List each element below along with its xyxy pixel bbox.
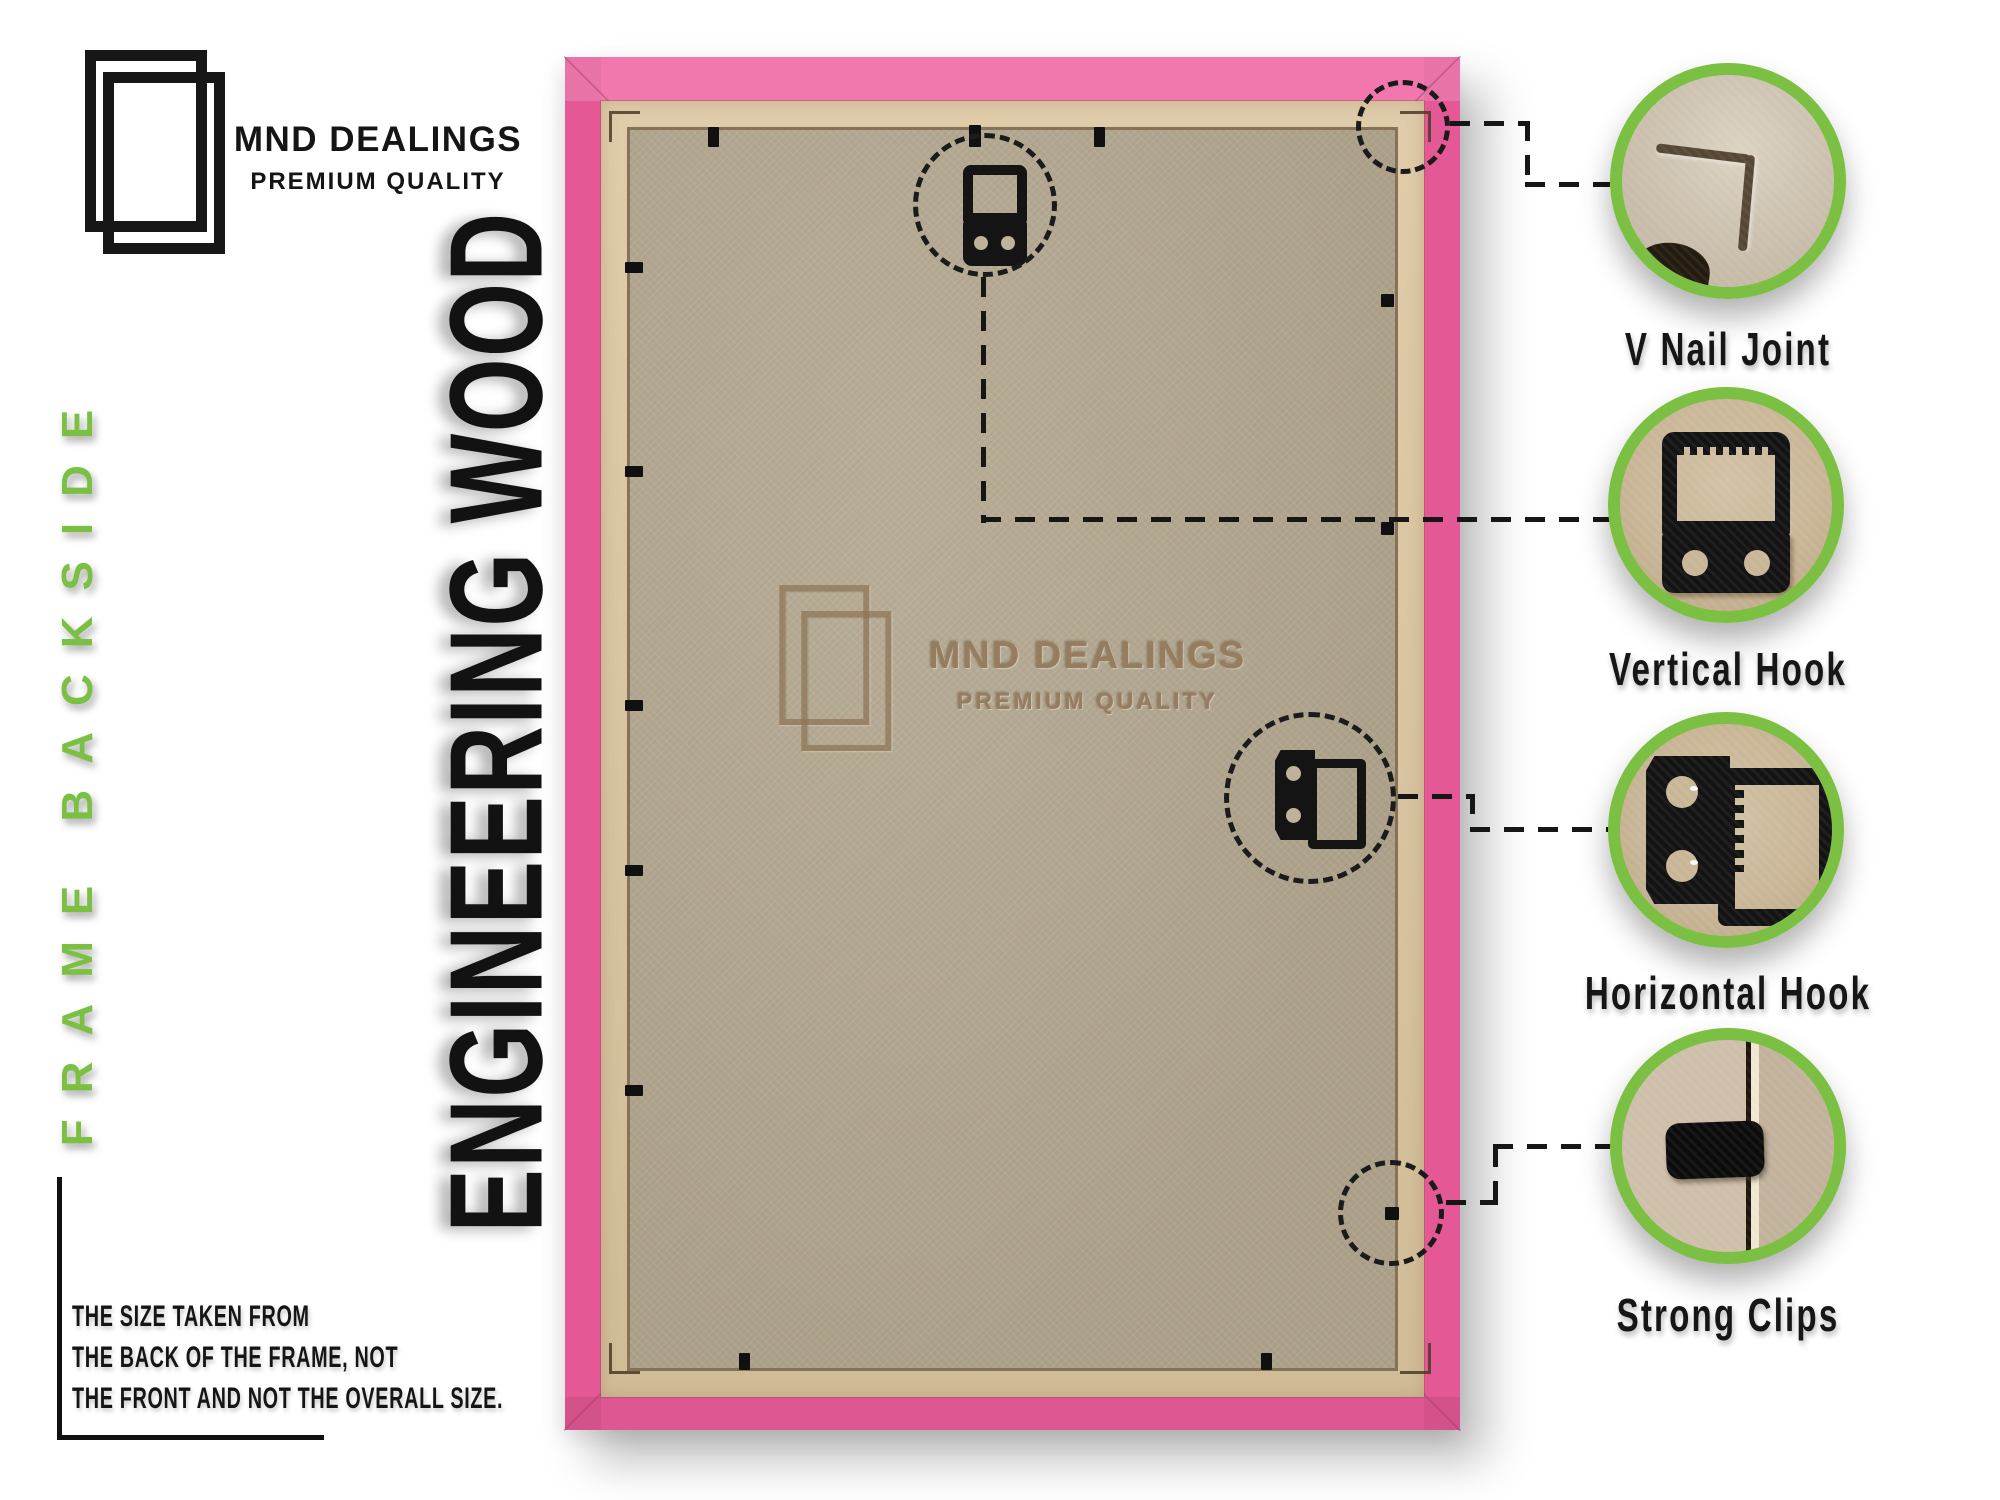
note-text: THE SIZE TAKEN FROM THE BACK OF THE FRAM… xyxy=(72,1296,725,1419)
connector-line xyxy=(981,277,986,523)
clip-mark xyxy=(625,865,643,876)
clip-mark xyxy=(625,466,643,477)
clip-mark xyxy=(1381,294,1394,307)
frame-backside-label: FRAME BACKSIDE xyxy=(53,384,103,1146)
note-line-1: THE SIZE TAKEN FROM xyxy=(72,1296,503,1337)
connector-line xyxy=(1450,121,1530,126)
callout-circle-v-nail-joint xyxy=(1610,63,1846,299)
connector-line xyxy=(1446,1200,1498,1205)
frame-backside-photo: MND DEALINGS PREMIUM QUALITY xyxy=(565,57,1460,1430)
callout-circle-vertical-hook xyxy=(1608,387,1844,623)
connector-line xyxy=(1470,827,1610,832)
brand-name: MND DEALINGS xyxy=(228,120,528,160)
watermark-logo-icon xyxy=(779,585,901,765)
brand-tagline: PREMIUM QUALITY xyxy=(228,168,528,196)
clip-mark xyxy=(625,262,643,273)
dashed-highlight-circle xyxy=(1224,712,1396,884)
watermark-name: MND DEALINGS xyxy=(929,635,1246,678)
dashed-highlight-circle xyxy=(1356,80,1450,174)
callout-label-vertical-hook: Vertical Hook xyxy=(1563,642,1893,696)
dashed-highlight-circle xyxy=(913,133,1057,277)
connector-line xyxy=(1525,182,1610,187)
watermark: MND DEALINGS PREMIUM QUALITY xyxy=(779,585,1246,765)
connector-line xyxy=(981,517,1610,522)
logo-rect-front xyxy=(103,72,225,254)
brand-header: MND DEALINGS PREMIUM QUALITY xyxy=(228,120,528,196)
callout-circle-strong-clips xyxy=(1610,1028,1846,1264)
connector-line xyxy=(1493,1147,1498,1205)
clip-mark xyxy=(625,1085,643,1096)
connector-line xyxy=(1525,121,1530,187)
connector-line xyxy=(1493,1144,1610,1149)
clip-mark xyxy=(708,127,719,147)
callout-circle-horizontal-hook xyxy=(1608,712,1844,948)
clip-mark xyxy=(1261,1353,1272,1370)
note-line-3: THE FRONT AND NOT THE OVERALL SIZE. xyxy=(72,1378,503,1419)
v-nail-groove-icon xyxy=(1656,143,1750,163)
callout-label-v-nail-joint: V Nail Joint xyxy=(1585,322,1871,376)
clip-mark xyxy=(1094,127,1105,147)
engineering-wood-label: ENGINEERING WOOD xyxy=(421,211,572,1232)
note-bracket-line xyxy=(57,1435,324,1440)
strong-clip-icon xyxy=(1665,1120,1765,1179)
note-line-2: THE BACK OF THE FRAME, NOT xyxy=(72,1337,503,1378)
callout-label-horizontal-hook: Horizontal Hook xyxy=(1529,966,1927,1020)
vertical-hook-icon xyxy=(1662,432,1790,578)
horizontal-hook-icon xyxy=(1646,756,1808,904)
watermark-tagline: PREMIUM QUALITY xyxy=(929,688,1246,715)
clip-mark xyxy=(1381,522,1394,535)
dashed-highlight-circle xyxy=(1338,1160,1444,1266)
clip-mark xyxy=(625,700,643,711)
connector-line xyxy=(1398,794,1475,799)
callout-label-strong-clips: Strong Clips xyxy=(1573,1288,1882,1342)
note-bracket-line xyxy=(57,1177,62,1440)
clip-mark xyxy=(739,1353,750,1370)
brand-logo-frames-icon xyxy=(85,50,215,240)
